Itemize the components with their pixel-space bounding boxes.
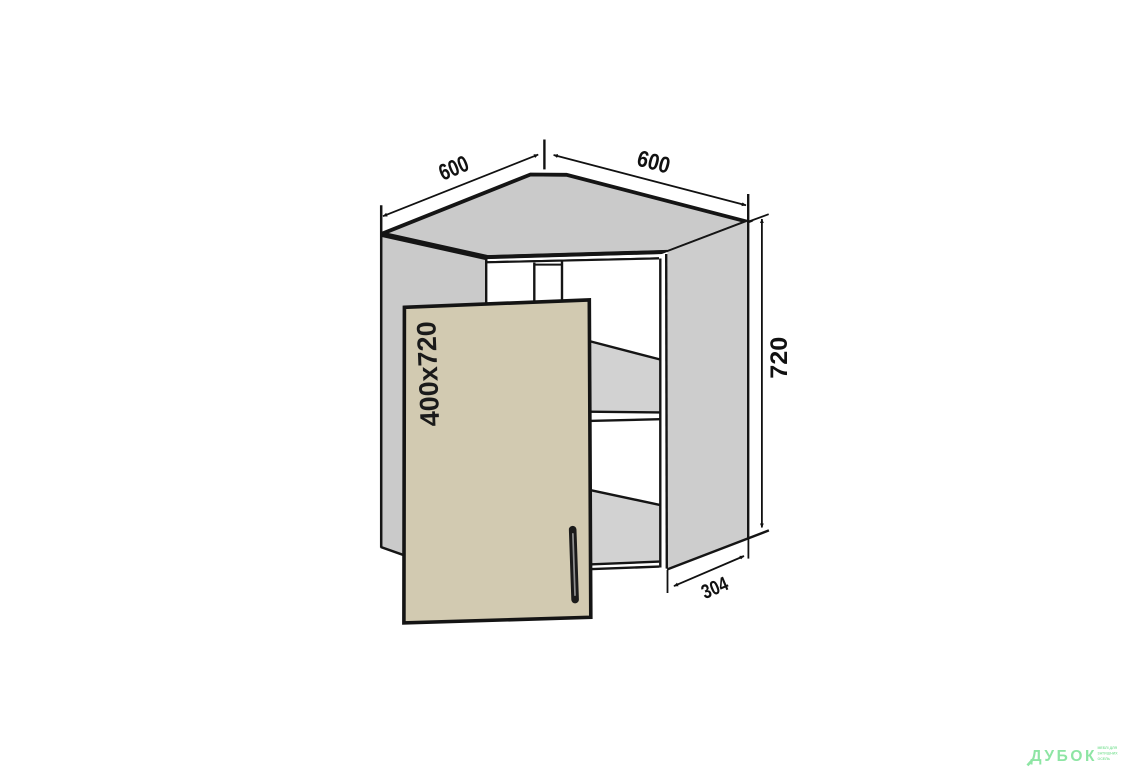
- svg-text:400x720: 400x720: [411, 321, 445, 427]
- svg-text:ОСЕЛЬ: ОСЕЛЬ: [1098, 757, 1111, 761]
- svg-text:304: 304: [698, 573, 732, 604]
- svg-text:ДУБОК: ДУБОК: [1031, 748, 1098, 765]
- svg-text:720: 720: [766, 337, 793, 379]
- svg-text:МЕБЛІ ДЛЯ: МЕБЛІ ДЛЯ: [1098, 746, 1118, 750]
- svg-text:ЗАТИШНИХ: ЗАТИШНИХ: [1098, 752, 1119, 756]
- svg-text:600: 600: [634, 145, 673, 179]
- svg-text:600: 600: [435, 150, 473, 186]
